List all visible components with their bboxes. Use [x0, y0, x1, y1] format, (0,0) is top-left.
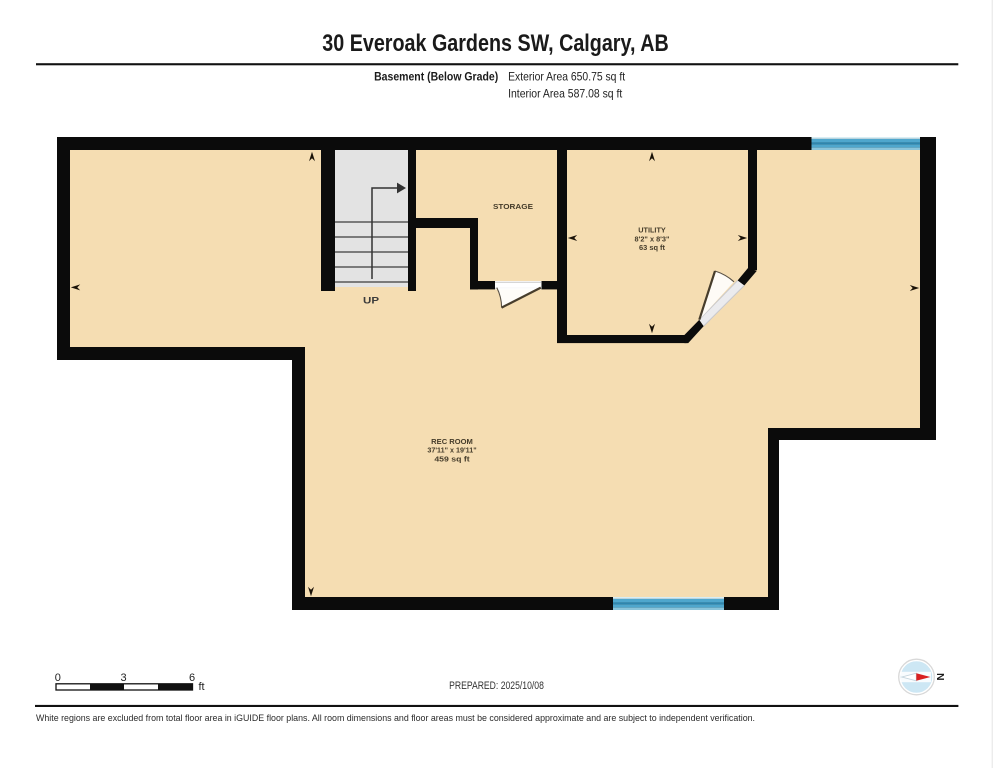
svg-text:UTILITY: UTILITY: [638, 226, 666, 235]
svg-text:0: 0: [55, 672, 61, 684]
svg-text:3: 3: [120, 672, 126, 684]
svg-text:STORAGE: STORAGE: [493, 202, 533, 211]
svg-text:PREPARED: 2025/10/08: PREPARED: 2025/10/08: [449, 680, 544, 692]
svg-text:37'11" x 19'11": 37'11" x 19'11": [427, 445, 477, 454]
svg-text:30 Everoak Gardens SW, Calgary: 30 Everoak Gardens SW, Calgary, AB: [322, 30, 668, 57]
svg-text:459 sq ft: 459 sq ft: [434, 455, 470, 464]
svg-text:N: N: [934, 673, 946, 681]
svg-text:Interior Area 587.08 sq ft: Interior Area 587.08 sq ft: [508, 86, 623, 100]
svg-text:6: 6: [189, 672, 195, 684]
svg-text:Exterior Area 650.75 sq ft: Exterior Area 650.75 sq ft: [508, 70, 626, 84]
svg-text:63 sq ft: 63 sq ft: [639, 243, 665, 252]
svg-text:White regions are excluded fro: White regions are excluded from total fl…: [36, 713, 755, 723]
svg-text:UP: UP: [363, 295, 380, 306]
svg-text:Basement (Below Grade): Basement (Below Grade): [374, 70, 498, 84]
svg-text:ft: ft: [199, 681, 205, 693]
